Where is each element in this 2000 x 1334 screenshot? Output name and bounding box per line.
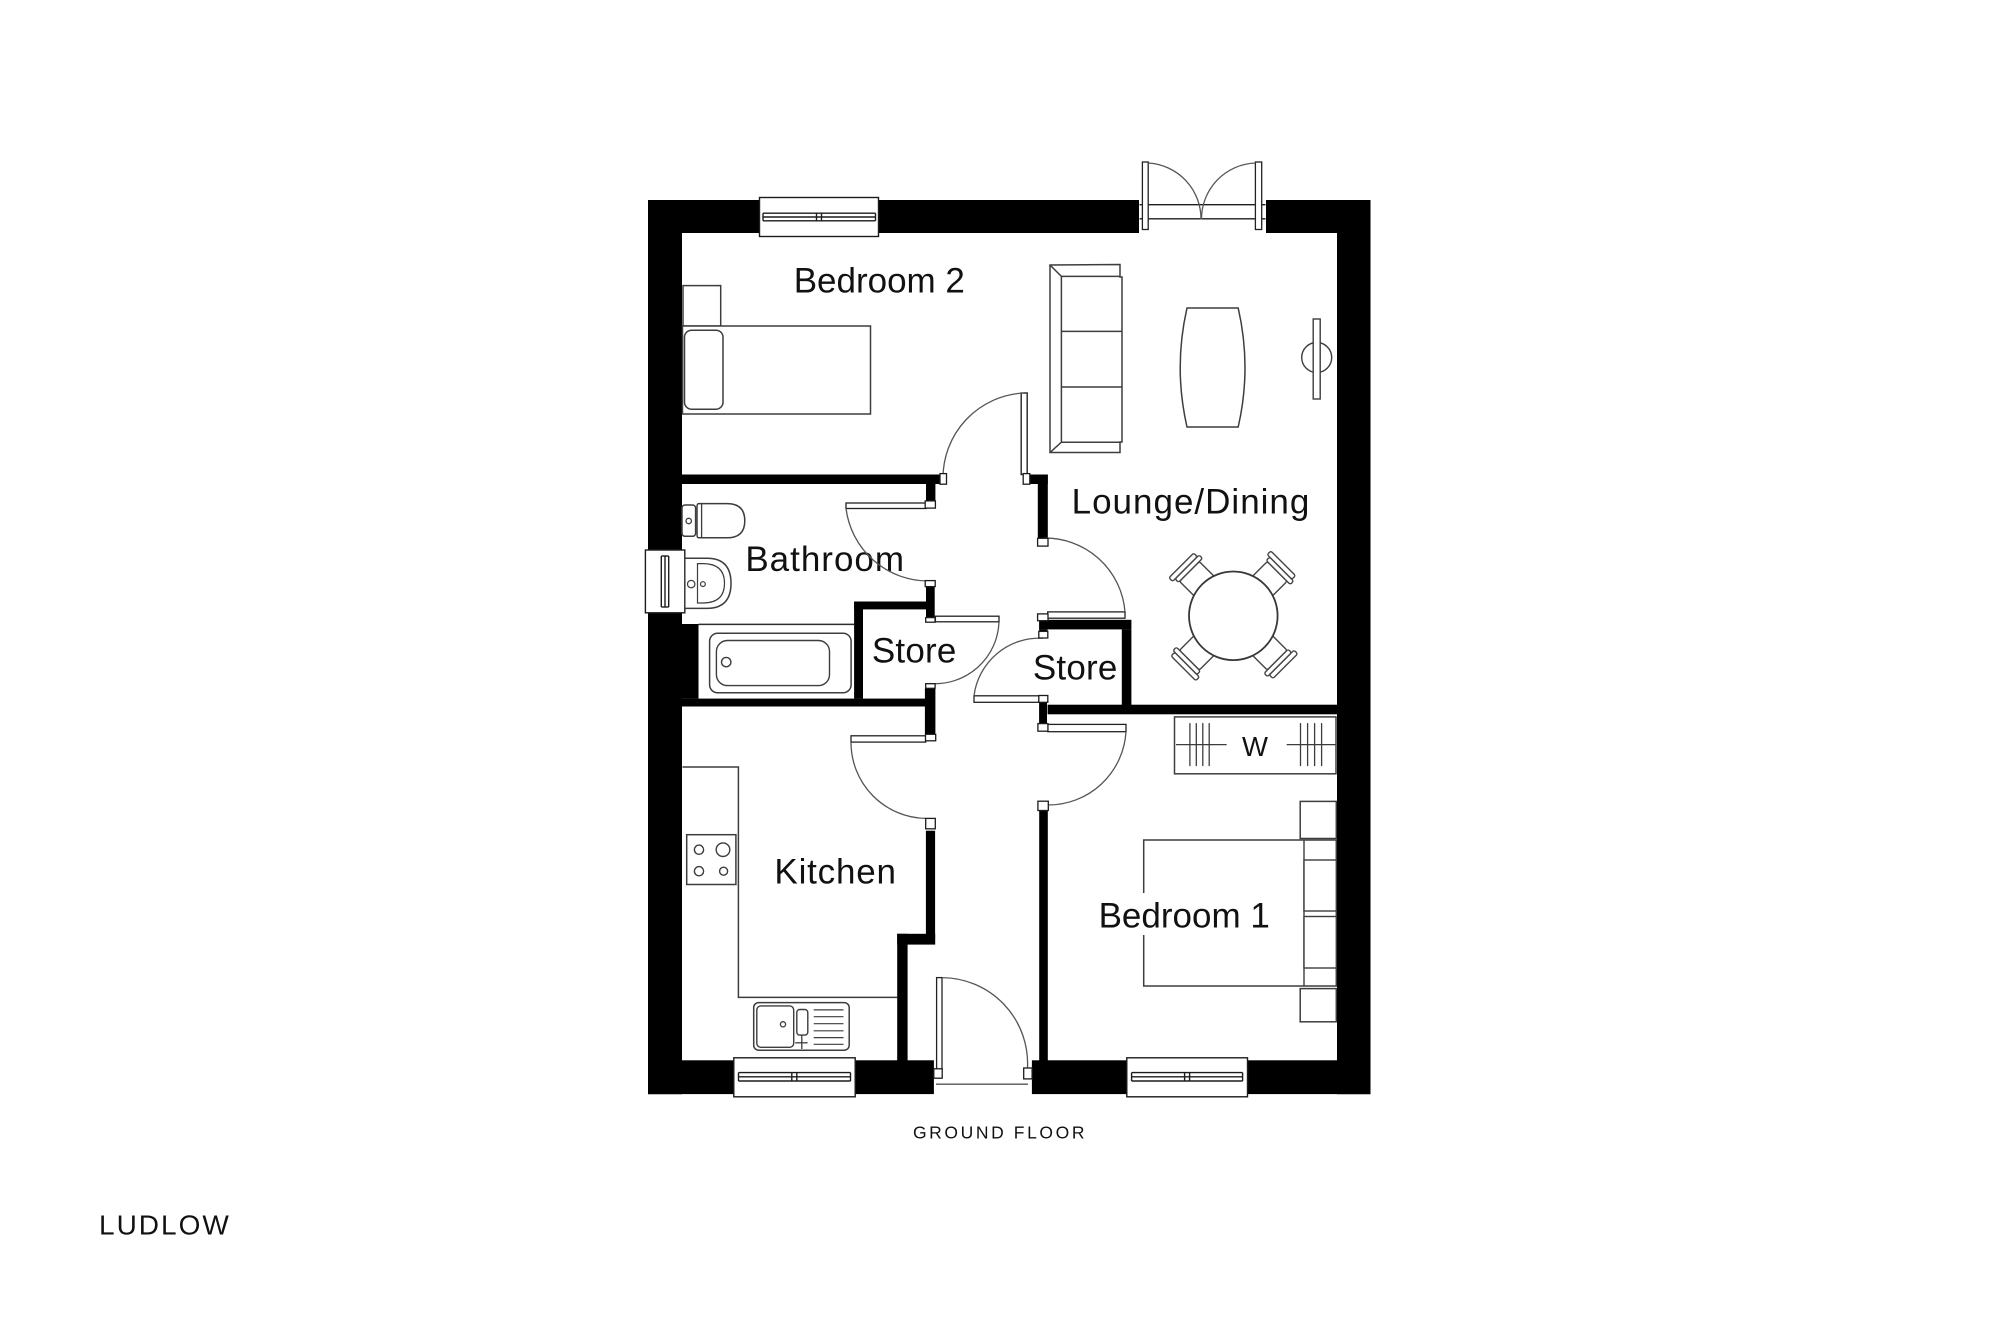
svg-text:Lounge/Dining: Lounge/Dining	[1072, 483, 1311, 522]
svg-text:Store: Store	[872, 632, 957, 671]
svg-text:GROUND FLOOR: GROUND FLOOR	[913, 1123, 1087, 1143]
svg-text:Bedroom 2: Bedroom 2	[794, 262, 965, 301]
svg-text:Kitchen: Kitchen	[774, 853, 896, 892]
svg-text:Bedroom 1: Bedroom 1	[1099, 896, 1270, 935]
svg-text:Bathroom: Bathroom	[745, 540, 905, 579]
svg-text:Store: Store	[1033, 649, 1118, 688]
svg-text:W: W	[1242, 731, 1268, 762]
svg-text:LUDLOW: LUDLOW	[99, 1210, 231, 1241]
